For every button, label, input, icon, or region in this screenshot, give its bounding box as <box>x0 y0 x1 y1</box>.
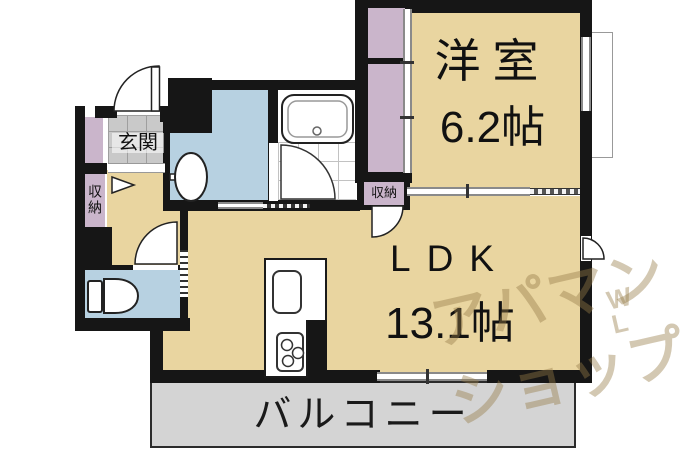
bathtub-drain <box>313 127 321 135</box>
label-western-size: 6.2帖 <box>410 106 575 150</box>
bathroom-door-arc <box>281 145 335 199</box>
stove-burner-1 <box>282 340 293 351</box>
toilet-tank <box>88 281 102 312</box>
stove-burner-2 <box>293 348 304 359</box>
storage-hall-door-arc <box>372 206 403 237</box>
washbasin <box>175 153 207 201</box>
label-western-room: 洋室 <box>410 38 575 84</box>
entrance-door-slab <box>152 67 160 111</box>
storage-west-door <box>112 177 134 193</box>
label-storage-west: 収納 <box>88 184 102 216</box>
toilet-door-arc <box>135 222 177 264</box>
toilet-bowl <box>104 279 138 313</box>
label-entrance: 玄関 <box>112 133 164 153</box>
floor-plan: 洋室 6.2帖 LDK 13.1帖 バルコニー 玄関 収納 収納 アパマン ショ… <box>0 0 690 460</box>
stove-burner-3 <box>283 356 294 367</box>
label-storage-hall: 収納 <box>364 186 404 199</box>
